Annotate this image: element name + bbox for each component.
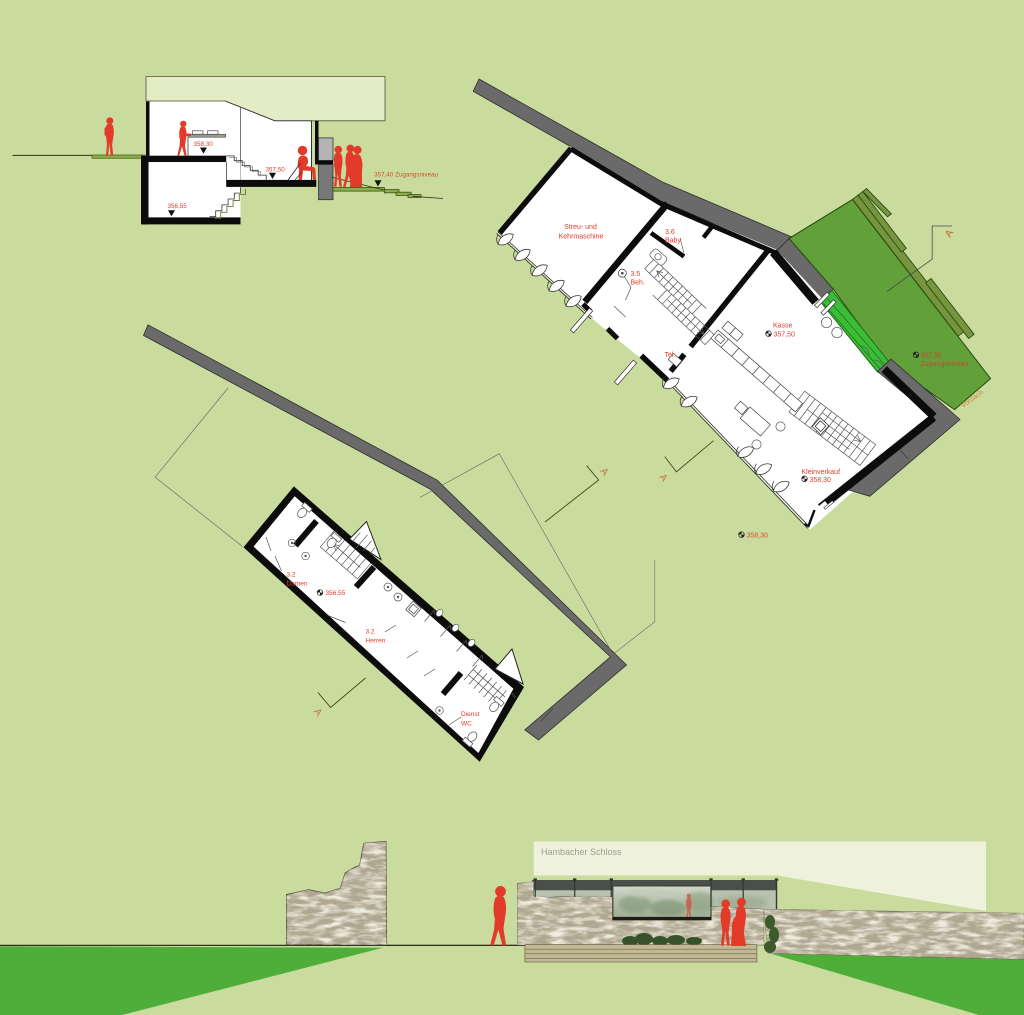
svg-text:Baby: Baby: [665, 238, 681, 245]
svg-text:Kasse: Kasse: [773, 323, 793, 330]
svg-text:Kleinverkauf: Kleinverkauf: [802, 469, 841, 476]
svg-text:358,30: 358,30: [810, 477, 832, 484]
svg-text:357,50: 357,50: [266, 167, 286, 174]
svg-text:Hambacher Schloss: Hambacher Schloss: [541, 847, 622, 857]
svg-text:3.5: 3.5: [631, 271, 641, 278]
svg-text:Kehrmaschine: Kehrmaschine: [559, 234, 604, 241]
svg-text:3.2: 3.2: [366, 629, 375, 636]
svg-text:Dienst: Dienst: [461, 711, 480, 718]
svg-text:Zugangsniveau: Zugangsniveau: [921, 361, 969, 368]
svg-text:WC: WC: [461, 721, 472, 728]
svg-text:Tel.: Tel.: [665, 352, 676, 359]
svg-text:357,40 Zugangsniveau: 357,40 Zugangsniveau: [374, 172, 439, 179]
svg-text:Damen: Damen: [287, 581, 308, 588]
svg-text:356,55: 356,55: [168, 203, 188, 210]
svg-text:358,30: 358,30: [194, 141, 214, 148]
svg-text:3.2: 3.2: [287, 572, 296, 579]
svg-text:357,50: 357,50: [921, 353, 943, 360]
svg-text:Streu- und: Streu- und: [564, 224, 597, 231]
svg-text:3.6: 3.6: [665, 229, 675, 236]
svg-text:Herren: Herren: [366, 638, 386, 645]
svg-text:356,55: 356,55: [326, 590, 346, 597]
svg-text:357,50: 357,50: [774, 332, 796, 339]
svg-text:358,30: 358,30: [747, 533, 769, 540]
svg-text:Beh.: Beh.: [631, 280, 645, 287]
